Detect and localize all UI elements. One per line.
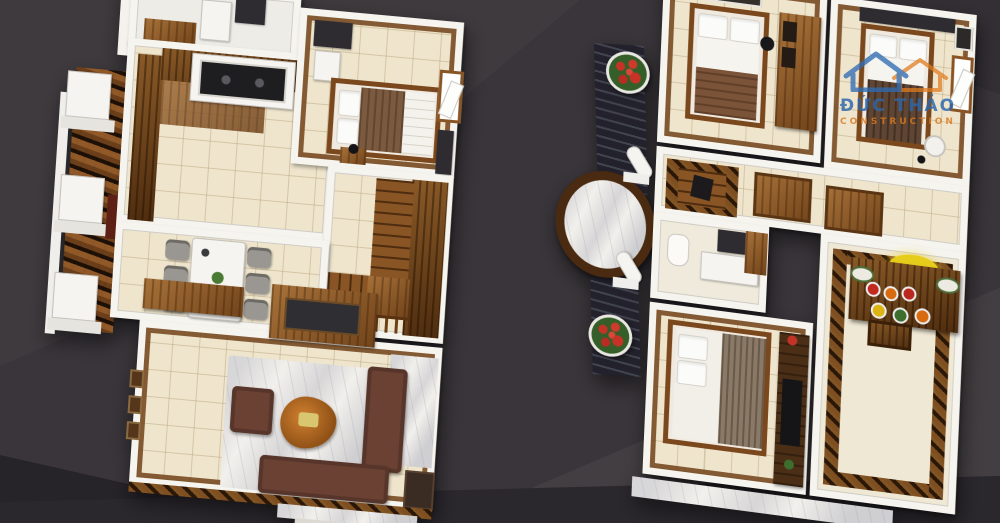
chair [165,239,190,261]
bathroom [650,212,769,313]
window-sash [438,80,464,119]
vanity [717,229,746,255]
tv-panel [435,130,454,175]
fruit-plate [901,286,917,303]
flower-bunch [852,267,872,282]
bed [685,2,770,128]
bedroom-ground [290,7,464,178]
armchair [230,386,275,436]
chair [247,247,272,269]
blanket [358,87,406,153]
appliance-dark [235,0,267,25]
wardrobe-niche [782,21,797,43]
stairwell-border [665,158,739,217]
stair-flight-upper [370,178,414,279]
pillar-cap [52,272,99,322]
altar-step-table [867,319,912,351]
first-floor-plan [81,0,467,523]
altar-table [848,257,960,333]
second-floor-plan [637,0,977,523]
window-open [950,55,974,114]
flower-bunch [938,278,958,293]
floor-border [823,470,943,500]
pillar-cap [58,174,105,224]
window-open [437,70,464,124]
camera-dot [917,155,925,164]
console-top [283,297,361,336]
tv-cabinet [403,470,435,511]
kitchen-side-counter [127,54,164,222]
table-plant [211,271,224,284]
tv-console [773,332,809,488]
door-mat [753,172,813,224]
fruit-plate [865,281,881,298]
washer [199,0,232,42]
render-canvas: ĐỨC THẢO CONSTRUCTION [0,0,1000,523]
door-mat [824,185,884,237]
small-window [128,395,143,414]
window-sash [949,68,975,108]
bath-cabinet [744,231,768,276]
pillow [676,360,707,388]
blanket [865,79,923,144]
flower-accent [787,335,797,346]
blanket [694,67,758,121]
fruit-plate [870,302,887,320]
altar-console [269,284,378,348]
sofa-long [361,366,408,473]
tv-screen [780,378,803,447]
pillar-cap [65,70,112,120]
plant-accent [784,459,794,470]
wardrobe-niche [781,47,796,69]
living-room [129,320,443,512]
speaker-cylinder [924,134,947,159]
bedroom-2 [657,0,828,163]
wardrobe [313,20,353,49]
chair [243,298,268,320]
floor-border [823,248,847,486]
dish [201,248,209,257]
master-bedroom [824,0,977,187]
small-window [126,421,141,440]
tray [298,412,319,428]
pillow [677,334,708,362]
wardrobe [775,12,822,131]
duvet [401,91,435,156]
bedroom-3 [642,302,813,495]
fruit-plate [883,285,899,302]
chair [245,272,270,294]
fruit-plate [914,307,931,325]
small-window [129,369,144,388]
bed [856,23,935,151]
picture-frame [954,25,973,51]
bed [663,319,772,457]
pillow [338,89,362,117]
worship-room [810,234,967,515]
pillow [336,117,360,145]
toilet [667,233,690,268]
curtain-drape [718,333,767,449]
